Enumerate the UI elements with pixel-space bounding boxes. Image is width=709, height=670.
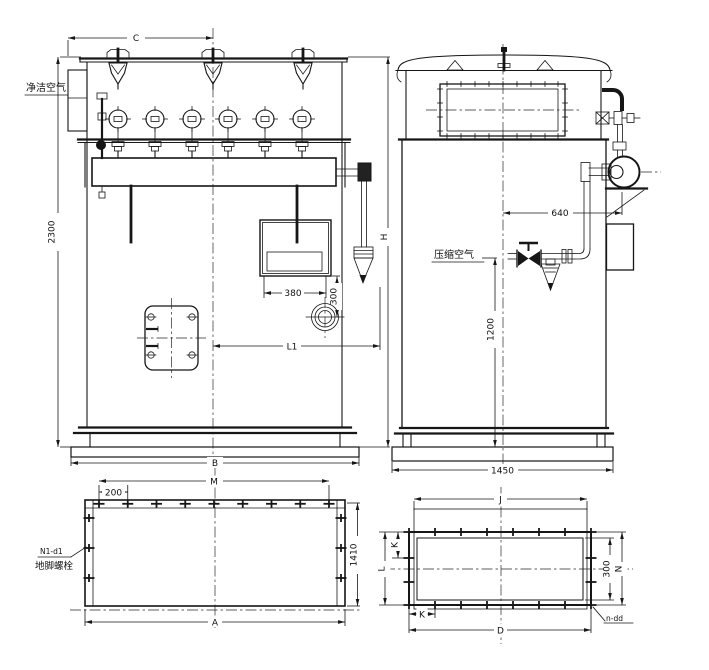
diaphragm-valve [596,112,640,125]
dust-collector-drawing: C 2300 H 净洁空气 [0,0,709,670]
foundation-plan-view: 200 M 1410 A N1-d1 地脚螺栓 [35,468,362,629]
flange-opening [417,538,583,600]
solenoid-valve [109,110,127,128]
side-view: 压缩空气 640 1200 1450 [392,44,661,477]
pipe-union [568,250,572,264]
dim-h: H [380,234,390,241]
dim-j: J [498,496,502,506]
solenoid-coil [261,117,269,122]
dim-300: 300 [330,288,340,305]
solenoid-valve [219,110,237,128]
air-filter [354,247,373,258]
solenoid-coil [114,117,122,122]
solenoid-coil [224,117,232,122]
solenoid-coil [151,117,159,122]
globe-valve [517,243,541,268]
valve-nut [115,147,122,152]
foundation-slab [71,447,359,457]
dim-n: N [615,566,625,573]
control-box [260,220,331,276]
dim-d: D [497,627,504,637]
pipe-union [358,163,371,181]
solenoid-valve [183,110,201,128]
access-door [137,298,206,378]
anchor-bolt-code: N1-d1 [40,547,63,556]
dim-a: A [212,619,219,629]
dim-m: M [210,478,218,488]
pipe-union [613,142,626,150]
anchor-bolt-name: 地脚螺栓 [35,560,74,572]
leader-line [593,607,605,621]
dim-2300: 2300 [48,220,58,243]
drain-plug [99,192,105,198]
dim-1450: 1450 [491,467,514,477]
valve-nut [225,147,232,152]
ball-valve [96,140,106,150]
control-box-panel [267,252,322,271]
engineering-drawing: C 2300 H 净洁空气 [0,0,709,670]
dim-l: L [378,566,388,571]
pulse-pipe-elbow [602,90,622,111]
compressed-air-label: 压缩空气 [434,248,474,261]
dim-1200: 1200 [487,318,497,341]
clean-air-label: 净洁空气 [26,81,66,94]
dim-300-flange: 300 [603,560,613,577]
pipe-union [562,250,566,264]
flange-bolt-group [404,528,597,609]
dim-b: B [212,459,218,469]
dim-380: 380 [284,289,301,299]
pulse-valve-group [107,49,314,89]
pulse-valve-rib [112,65,119,74]
front-view: C 2300 H 净洁空气 [25,28,393,469]
solenoid-valve [256,110,274,128]
roof-gusset [447,61,463,71]
pulse-valve-rib [118,65,125,74]
dim-1410: 1410 [350,543,360,566]
junction-box [607,224,634,270]
valve-nut [152,147,159,152]
pipe-elbow [581,163,590,182]
valve-nut [189,147,196,152]
pulse-valve-rib [297,65,304,74]
roof-gusset [537,61,553,71]
valve-nut [262,147,269,152]
dim-640: 640 [551,209,568,219]
flange-plan-view: J K L K 300 N D n-dd [378,487,634,644]
plenum-outline [414,509,587,609]
solenoid-valve [146,110,164,128]
pulse-valve-rib [207,65,214,74]
solenoid-coil [188,117,196,122]
solenoid-valve [293,110,311,128]
solenoid-valve-group [106,107,315,159]
clean-air-outlet-duct [68,70,87,131]
dim-c: C [133,34,139,44]
bolted-flange [409,532,591,605]
foundation-slab [392,447,613,461]
blower-unit [606,157,661,218]
flange-bolt-code: n-dd [606,614,623,623]
dim-l1: L1 [287,343,298,353]
solenoid-coil [298,117,306,122]
pulse-valve-rib [303,65,310,74]
valve-nut [299,147,306,152]
leader-line [71,547,86,557]
dim-200: 200 [105,489,122,499]
water-separator [541,259,560,291]
pulse-valve-rib [213,65,220,74]
air-manifold [92,158,336,186]
